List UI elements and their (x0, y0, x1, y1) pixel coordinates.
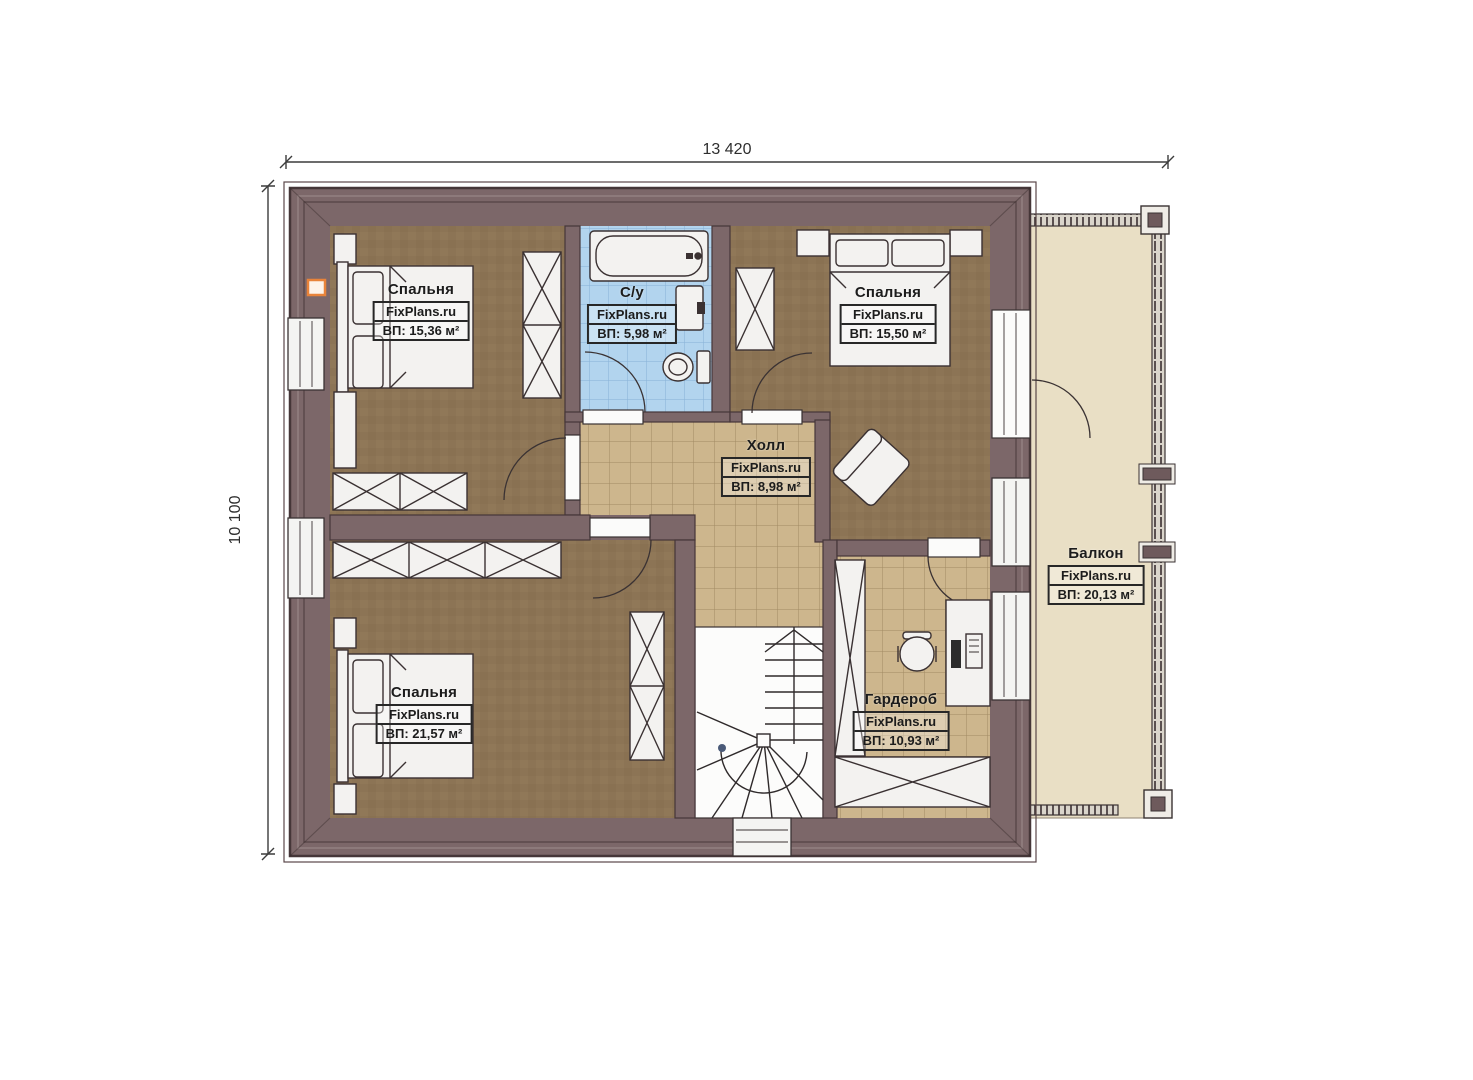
sink (676, 286, 705, 330)
room-area-label: ВП: 21,57 м² (378, 725, 471, 742)
nightstand (334, 618, 356, 648)
balcony-post-mid-1 (1139, 464, 1175, 484)
wardrobe-bottom-left-right (630, 612, 664, 760)
office-chair (898, 632, 936, 671)
brand-label: FixPlans.ru (375, 303, 468, 322)
room-label-balcony: Балкон FixPlans.ru ВП: 20,13 м² (1048, 545, 1145, 605)
room-name: С/у (587, 284, 677, 301)
wardrobe-top-left-bottom (333, 473, 467, 510)
room-label-boxes: FixPlans.ru ВП: 15,36 м² (373, 301, 470, 341)
nightstand (334, 784, 356, 814)
room-name: Балкон (1048, 545, 1145, 562)
room-area-label: ВП: 15,50 м² (842, 325, 935, 342)
window-left-2 (288, 518, 324, 598)
room-label-boxes: FixPlans.ru ВП: 21,57 м² (376, 704, 473, 744)
room-area-label: ВП: 20,13 м² (1050, 586, 1143, 603)
room-label-boxes: FixPlans.ru ВП: 20,13 м² (1048, 565, 1145, 605)
room-label-boxes: FixPlans.ru ВП: 8,98 м² (721, 457, 811, 497)
room-label-boxes: FixPlans.ru ВП: 10,93 м² (853, 711, 950, 751)
floor-stairwell (695, 627, 823, 818)
room-label-hall: Холл FixPlans.ru ВП: 8,98 м² (721, 437, 811, 497)
brand-label: FixPlans.ru (378, 706, 471, 725)
nightstand (797, 230, 829, 256)
floor-hall-corridor (695, 515, 823, 627)
room-label-boxes: FixPlans.ru ВП: 15,50 м² (840, 304, 937, 344)
floorplan-canvas: 13 420 10 100 Спальня FixPlans.ru ВП: 15… (0, 0, 1473, 1080)
window-right-1 (992, 478, 1030, 566)
balcony-corner-post-bottom (1144, 790, 1172, 818)
room-name: Спальня (376, 684, 473, 701)
dimension-height-label: 10 100 (227, 496, 245, 545)
room-name: Спальня (840, 284, 937, 301)
nightstand (950, 230, 982, 256)
pillow (836, 240, 888, 266)
room-label-bathroom: С/у FixPlans.ru ВП: 5,98 м² (587, 284, 677, 344)
room-name: Гардероб (853, 691, 950, 708)
bathtub (590, 231, 708, 281)
balcony-post-mid-2 (1139, 542, 1175, 562)
room-name: Холл (721, 437, 811, 454)
toilet (663, 351, 710, 383)
dimension-width-label: 13 420 (703, 141, 752, 159)
desk (946, 600, 990, 706)
room-name: Спальня (373, 281, 470, 298)
nightstand (334, 234, 356, 264)
door-wardrobe-room (928, 538, 980, 557)
room-area-label: ВП: 8,98 м² (723, 478, 809, 495)
bed-headboard (337, 262, 348, 392)
pillow (353, 336, 383, 388)
wardrobe-bottom-left-top (333, 542, 561, 578)
wardrobe-top-left-right (523, 252, 561, 398)
wall-vent-marker (308, 280, 325, 295)
balcony-floor (1030, 214, 1165, 818)
monitor (951, 640, 961, 668)
room-label-bedroom-bottom-left: Спальня FixPlans.ru ВП: 21,57 м² (376, 684, 473, 744)
wardrobe-top-right (736, 268, 774, 350)
door-balcony (992, 310, 1030, 438)
room-area-label: ВП: 15,36 м² (375, 322, 468, 339)
window-bottom (733, 818, 791, 856)
door-bedroom-top-right (742, 410, 802, 424)
door-bedroom-top-left (565, 435, 580, 500)
wardrobe-room-low-closet (835, 757, 990, 807)
brand-label: FixPlans.ru (723, 459, 809, 478)
pc-tower (966, 634, 982, 668)
brand-label: FixPlans.ru (855, 713, 948, 732)
room-label-bedroom-top-right: Спальня FixPlans.ru ВП: 15,50 м² (840, 284, 937, 344)
room-area-label: ВП: 5,98 м² (589, 325, 675, 342)
door-bedroom-bottom-left (590, 518, 650, 537)
dresser (334, 392, 356, 468)
brand-label: FixPlans.ru (842, 306, 935, 325)
bed-headboard (337, 650, 348, 782)
balcony (1030, 206, 1175, 818)
room-area-label: ВП: 10,93 м² (855, 732, 948, 749)
dimension-line-left (261, 180, 275, 860)
pillow (892, 240, 944, 266)
balcony-corner-post-top (1141, 206, 1169, 234)
brand-label: FixPlans.ru (1050, 567, 1143, 586)
door-bathroom (583, 410, 643, 424)
stairs-newel-dot (718, 744, 726, 752)
room-label-bedroom-top-left: Спальня FixPlans.ru ВП: 15,36 м² (373, 281, 470, 341)
window-right-2 (992, 592, 1030, 700)
room-label-boxes: FixPlans.ru ВП: 5,98 м² (587, 304, 677, 344)
room-label-wardrobe: Гардероб FixPlans.ru ВП: 10,93 м² (853, 691, 950, 751)
balcony-railing-bottom (1030, 805, 1118, 815)
brand-label: FixPlans.ru (589, 306, 675, 325)
window-left-1 (288, 318, 324, 390)
floorplan-drawing (0, 0, 1473, 1080)
balcony-railing-right (1152, 214, 1165, 818)
